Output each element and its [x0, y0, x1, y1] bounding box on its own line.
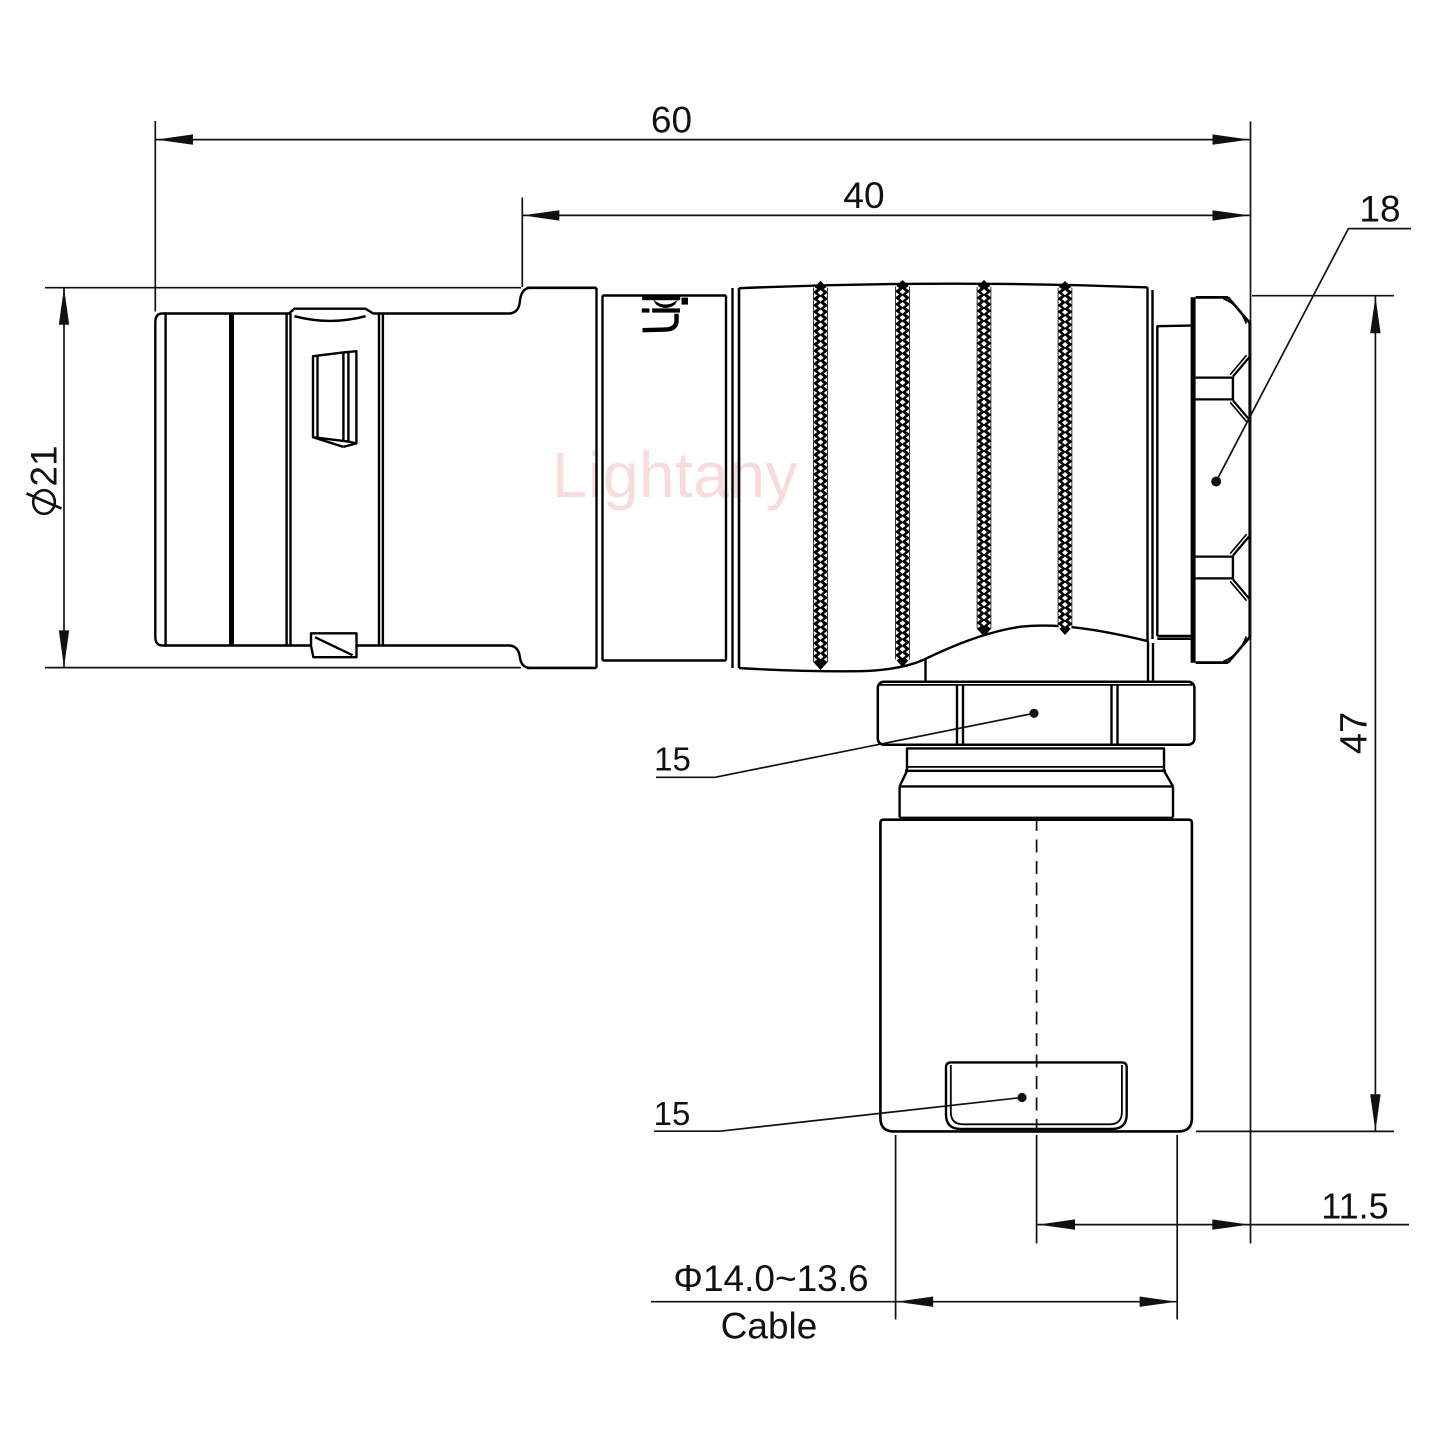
svg-text:Cable: Cable	[721, 1305, 818, 1346]
svg-text:18: 18	[1359, 188, 1400, 229]
svg-text:15: 15	[654, 740, 691, 777]
svg-text:15: 15	[654, 1095, 691, 1132]
svg-text:Φ14.0~13.6: Φ14.0~13.6	[673, 1258, 868, 1299]
svg-text:11.5: 11.5	[1321, 1186, 1388, 1227]
svg-text:60: 60	[651, 100, 692, 141]
svg-text:40: 40	[843, 175, 884, 216]
svg-text:47: 47	[1334, 712, 1376, 754]
svg-text:Lightany: Lightany	[552, 439, 798, 511]
svg-text:21: 21	[24, 445, 65, 486]
